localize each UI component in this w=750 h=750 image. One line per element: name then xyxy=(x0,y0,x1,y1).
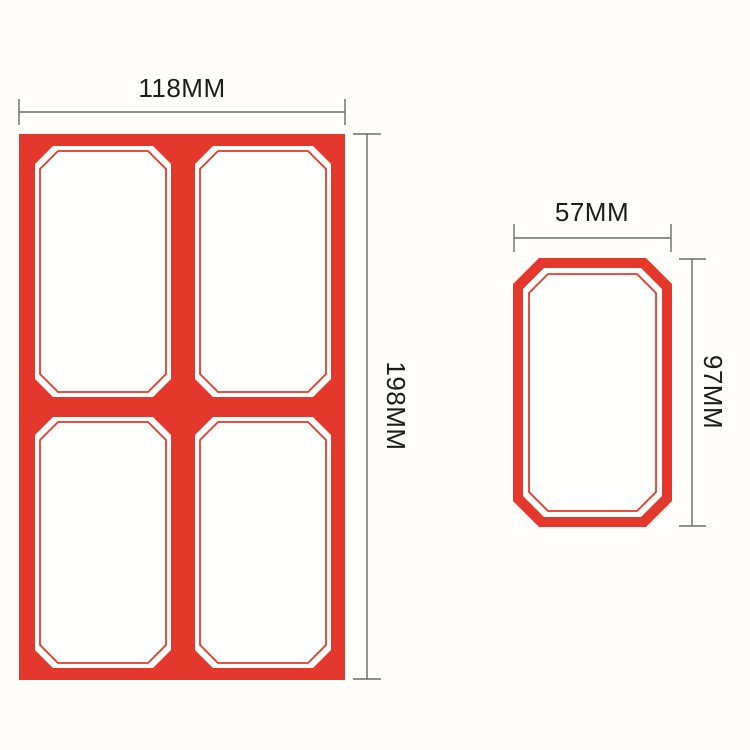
label-cell xyxy=(35,417,171,668)
single-label-width-value: 57MM xyxy=(555,197,629,227)
label-cell xyxy=(195,417,331,668)
single-label-face xyxy=(523,268,662,517)
label-dimension-diagram: 118MM 198MM 57MM 97MM xyxy=(0,0,750,750)
label-cell xyxy=(35,146,171,397)
single-label-height-value: 97MM xyxy=(698,355,728,429)
single-label xyxy=(513,258,672,527)
label-cell xyxy=(195,146,331,397)
sheet-height-value: 198MM xyxy=(381,361,411,450)
sheet-width-value: 118MM xyxy=(138,73,225,103)
label-sheet xyxy=(19,134,345,680)
